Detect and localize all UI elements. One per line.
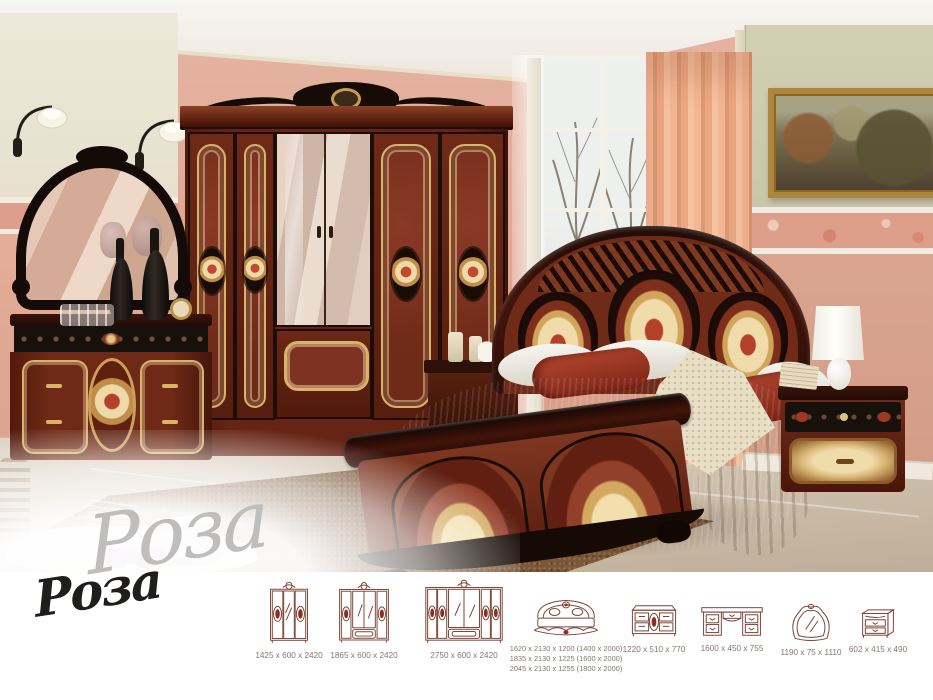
mirror-door-handle-left	[317, 226, 321, 238]
dressing-table-icon	[700, 604, 764, 638]
drawer-handle	[162, 384, 178, 388]
window-mullion-h1	[545, 128, 661, 132]
wardrobe-door-2	[235, 132, 275, 420]
room-photo	[0, 0, 933, 572]
band-red-oval	[877, 412, 891, 422]
table-lamp-shade	[812, 306, 864, 360]
drawer-handle	[46, 384, 62, 388]
right-wall-marble-band	[745, 213, 933, 248]
catalog-item-nightstand: 602 x 415 x 490	[846, 606, 910, 655]
dresser-black-band	[14, 326, 208, 352]
mirror-curl-left	[12, 278, 30, 296]
wardrobe-3-door-icon	[267, 581, 311, 645]
footboard-foot	[655, 519, 692, 545]
mirror-icon	[788, 601, 834, 642]
right-nightstand	[778, 386, 908, 498]
item-dimensions: 1425 x 600 x 2420	[255, 651, 322, 661]
mirror-highlight	[285, 134, 303, 325]
drawer-handle	[46, 420, 62, 424]
wall-painting	[768, 88, 933, 198]
door-2-medallion	[244, 248, 266, 292]
band-knob	[840, 413, 848, 421]
item-dimensions: 1190 x 75 x 1110	[781, 648, 842, 658]
item-dimensions: 1600 x 450 x 755	[701, 644, 764, 654]
nightstand-black-band	[785, 402, 901, 432]
item-dimensions: 1865 x 600 x 2420	[330, 651, 397, 661]
table-clock	[170, 298, 192, 320]
glassware	[60, 304, 114, 326]
catalog-item-dresser: 1220 x 510 x 770	[622, 603, 686, 655]
catalog-item-wardrobe-3-door: 1425 x 600 x 2420	[248, 581, 330, 661]
mirror-curl-right	[174, 278, 192, 296]
catalog-page: Роза Роза 15 могано / глянец 1425 x 600 …	[0, 0, 933, 700]
wardrobe-4-door-icon	[337, 581, 391, 645]
drawer-handle	[162, 420, 178, 424]
dresser-icon	[627, 603, 681, 639]
band-red-oval	[795, 412, 809, 422]
wardrobe-cornice	[180, 106, 513, 130]
nightstand-drawer	[789, 438, 897, 484]
door-4-medallion	[459, 248, 487, 300]
item-dimensions: 1220 x 510 x 770	[623, 645, 686, 655]
mirror-door-seam	[324, 134, 326, 325]
door-1-medallion	[200, 248, 224, 294]
item-dimensions: 2750 x 600 x 2420	[430, 651, 497, 661]
catalog-item-dressing-table: 1600 x 450 x 755	[694, 604, 770, 654]
nightstand-icon	[859, 606, 897, 639]
wardrobe-6-door-icon	[424, 579, 504, 645]
drawer-gold-panel	[284, 341, 369, 391]
table-lamp-base	[827, 358, 851, 390]
band-center-ornament	[102, 333, 120, 345]
open-book	[779, 362, 819, 390]
item-dimensions: 602 x 415 x 490	[849, 645, 907, 655]
catalog-item-mirror: 1190 x 75 x 1110	[776, 601, 846, 658]
door-3-medallion	[392, 248, 420, 300]
mirror-door-handle-right	[329, 226, 333, 238]
window-mullion-h2	[545, 208, 661, 212]
candle	[448, 332, 463, 362]
wardrobe-mirror-doors	[275, 132, 372, 327]
catalog-item-wardrobe-4-door: 1865 x 600 x 2420	[322, 581, 406, 661]
catalog-item-bed: 1620 x 2130 x 1200 (1400 x 2000) 1835 x …	[498, 597, 634, 674]
bed-icon	[530, 597, 602, 641]
item-dimensions: 1620 x 2130 x 1200 (1400 x 2000) 1835 x …	[510, 644, 623, 674]
wall-sconce-left	[8, 96, 70, 158]
drawer-handle	[836, 459, 854, 464]
nightstand-body	[781, 400, 905, 492]
